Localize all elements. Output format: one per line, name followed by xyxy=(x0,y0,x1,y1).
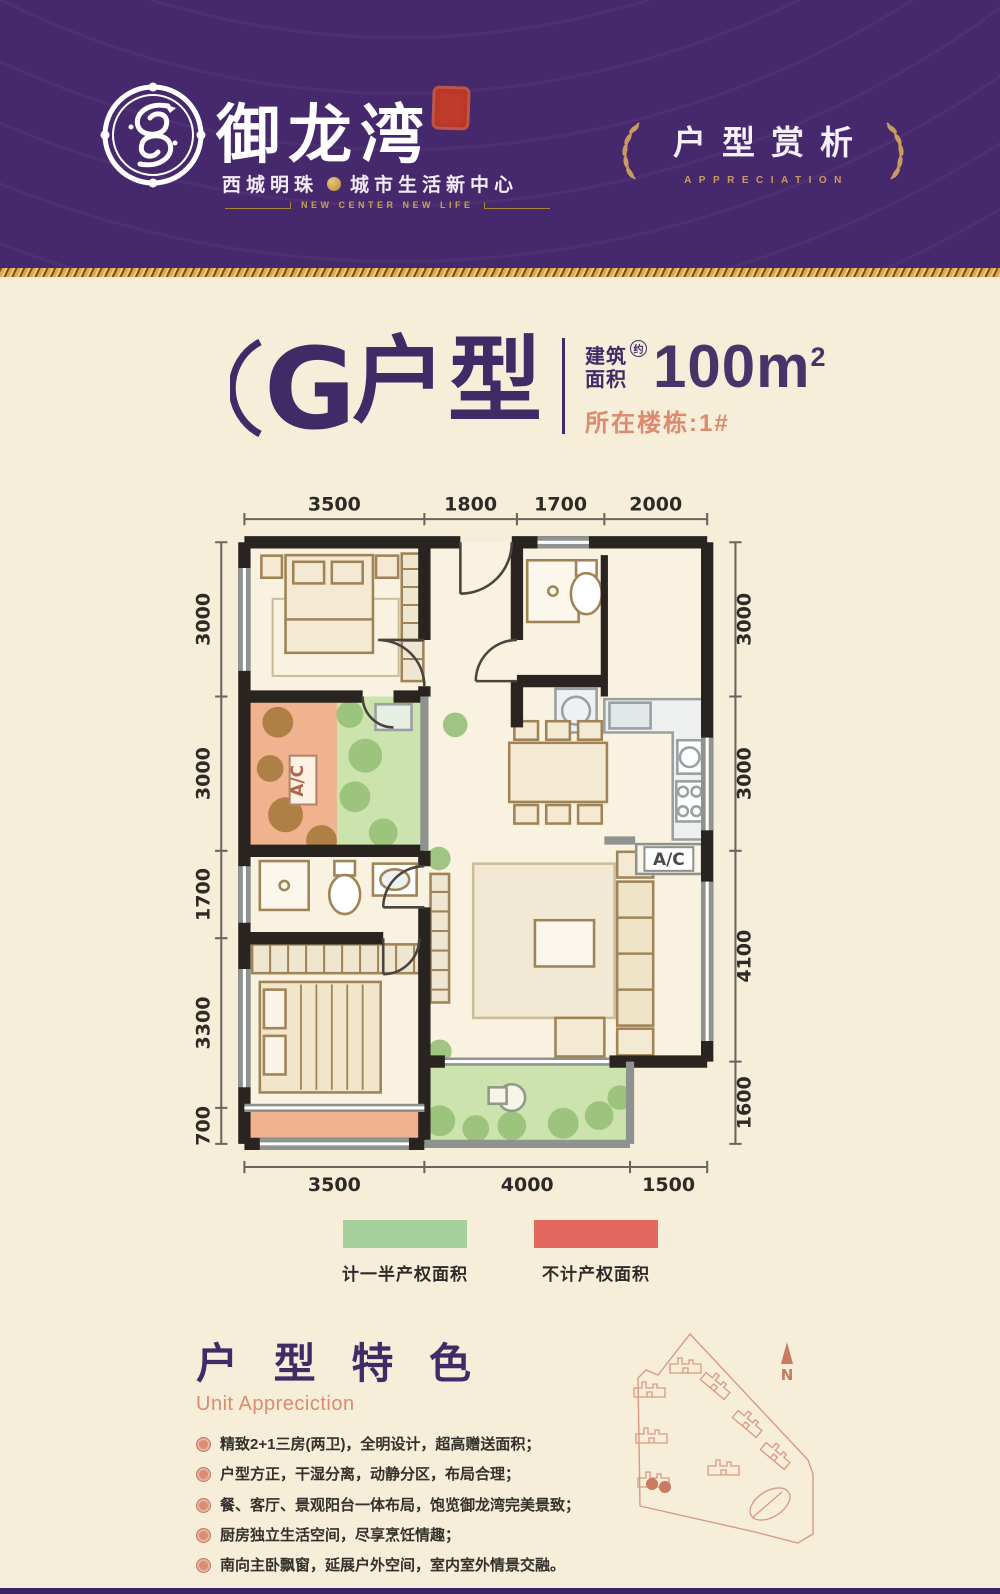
site-buildings xyxy=(634,1358,796,1527)
feature-text: 户型方正，干湿分离，动静分区，布局合理； xyxy=(220,1466,520,1483)
tagline-dot-icon xyxy=(327,177,341,191)
area-label-bottom: 面积 xyxy=(585,369,627,392)
title-divider xyxy=(562,338,565,434)
north-label: N xyxy=(781,1366,794,1384)
dragon-glyph xyxy=(137,105,170,165)
section-title: 户型赏析 xyxy=(657,116,869,164)
bullet-seal-icon xyxy=(196,1437,211,1452)
brand-seal-stamp xyxy=(431,85,471,130)
tagline-en: NEW CENTER NEW LIFE xyxy=(301,200,474,210)
laurel-left-icon xyxy=(615,119,645,183)
tagline-line-right xyxy=(484,202,550,209)
ac-label-platform: A/C xyxy=(653,849,685,869)
gold-rope-border xyxy=(0,268,1000,277)
feature-item: 餐、客厅、景观阳台一体布局，饱览御龙湾完美景致； xyxy=(196,1497,666,1514)
bullet-seal-icon xyxy=(196,1558,211,1573)
features-title: 户 型 特 色 xyxy=(196,1330,666,1391)
dim-right-1: 3000 xyxy=(733,593,755,646)
unit-letter: G xyxy=(264,328,352,448)
legend-label-no-property: 不计产权面积 xyxy=(542,1260,650,1285)
dim-bottom-1: 3500 xyxy=(308,1174,361,1196)
feature-item: 南向主卧飘窗，延展户外空间，室内室外情景交融。 xyxy=(196,1557,666,1574)
feature-text: 南向主卧飘窗，延展户外空间，室内室外情景交融。 xyxy=(220,1557,565,1574)
dim-top-4: 2000 xyxy=(629,493,682,515)
feature-item: 精致2+1三房(两卫)，全明设计，超高赠送面积； xyxy=(196,1436,666,1453)
dim-left-2: 3000 xyxy=(192,747,214,800)
legend-swatch-red xyxy=(534,1220,658,1248)
siteplan: N xyxy=(612,1296,877,1571)
feature-text: 厨房独立生活空间，尽享烹饪情趣； xyxy=(220,1527,460,1544)
unit-name: 户型 xyxy=(352,328,544,433)
dim-left-1: 3000 xyxy=(192,593,214,646)
bullet-seal-icon xyxy=(196,1467,211,1482)
features-section: 户 型 特 色 Unit Appreciction 精致2+1三房(两卫)，全明… xyxy=(196,1330,666,1587)
dim-top-2: 1800 xyxy=(444,493,497,515)
tagline-right: 城市生活新中心 xyxy=(350,170,518,197)
legend-swatch-green xyxy=(343,1220,467,1248)
ac-label-balcony: A/C xyxy=(287,765,307,797)
dim-top-3: 1700 xyxy=(534,493,587,515)
dim-bottom-3: 1500 xyxy=(642,1174,695,1196)
section-subtitle: APPRECIATION xyxy=(657,175,869,186)
north-compass-icon: N xyxy=(781,1342,794,1384)
floorplan: A/C A/C xyxy=(180,478,805,1221)
dim-top-1: 3500 xyxy=(308,493,361,515)
tagline-line-left xyxy=(225,202,291,209)
area-exponent: 2 xyxy=(810,342,826,372)
dim-right-4: 1600 xyxy=(733,1076,755,1129)
dim-left-5: 700 xyxy=(192,1106,214,1146)
unit-title-block: G 户型 建筑 面积 约 100m2 所在楼栋:1# xyxy=(230,328,827,448)
laurel-right-icon xyxy=(881,119,911,183)
bullet-seal-icon xyxy=(196,1498,211,1513)
legend-item-no-property: 不计产权面积 xyxy=(534,1220,658,1285)
area-label-top: 建筑 xyxy=(585,346,627,369)
features-subtitle: Unit Appreciction xyxy=(196,1393,666,1416)
legend: 计一半产权面积 不计产权面积 xyxy=(0,1220,1000,1285)
unit-location-marker xyxy=(659,1481,671,1493)
dragon-logo xyxy=(98,80,208,190)
legend-item-half-property: 计一半产权面积 xyxy=(342,1220,468,1285)
dim-left-4: 3300 xyxy=(192,997,214,1050)
footer-bar xyxy=(0,1588,1000,1594)
building-label: 所在楼栋:1# xyxy=(585,403,827,438)
unit-location-marker xyxy=(646,1478,658,1490)
dim-right-2: 3000 xyxy=(733,747,755,800)
tagline-left: 西城明珠 xyxy=(222,170,318,197)
bullet-seal-icon xyxy=(196,1528,211,1543)
feature-item: 户型方正，干湿分离，动静分区，布局合理； xyxy=(196,1466,666,1483)
features-list: 精致2+1三房(两卫)，全明设计，超高赠送面积； 户型方正，干湿分离，动静分区，… xyxy=(196,1436,666,1574)
dim-right-3: 4100 xyxy=(733,930,755,983)
brand-name: 御龙湾 xyxy=(216,84,432,176)
section-header: 户型赏析 APPRECIATION xyxy=(598,116,928,186)
approx-note: 约 xyxy=(630,340,647,357)
brand-tagline: 西城明珠 城市生活新中心 xyxy=(222,170,518,197)
dim-left-3: 1700 xyxy=(192,868,214,921)
area-number: 100m xyxy=(653,333,810,400)
feature-text: 精致2+1三房(两卫)，全明设计，超高赠送面积； xyxy=(220,1436,540,1453)
brand-tagline-en-row: NEW CENTER NEW LIFE xyxy=(225,200,550,210)
unit-letter-mark: G xyxy=(230,328,352,448)
header-banner: 御龙湾 西城明珠 城市生活新中心 NEW CENTER NEW LIFE 户型赏… xyxy=(0,0,1000,268)
feature-item: 厨房独立生活空间，尽享烹饪情趣； xyxy=(196,1527,666,1544)
area-value: 100m2 xyxy=(653,338,827,395)
legend-label-half-property: 计一半产权面积 xyxy=(342,1260,468,1285)
feature-text: 餐、客厅、景观阳台一体布局，饱览御龙湾完美景致； xyxy=(220,1497,580,1514)
dim-bottom-2: 4000 xyxy=(501,1174,554,1196)
